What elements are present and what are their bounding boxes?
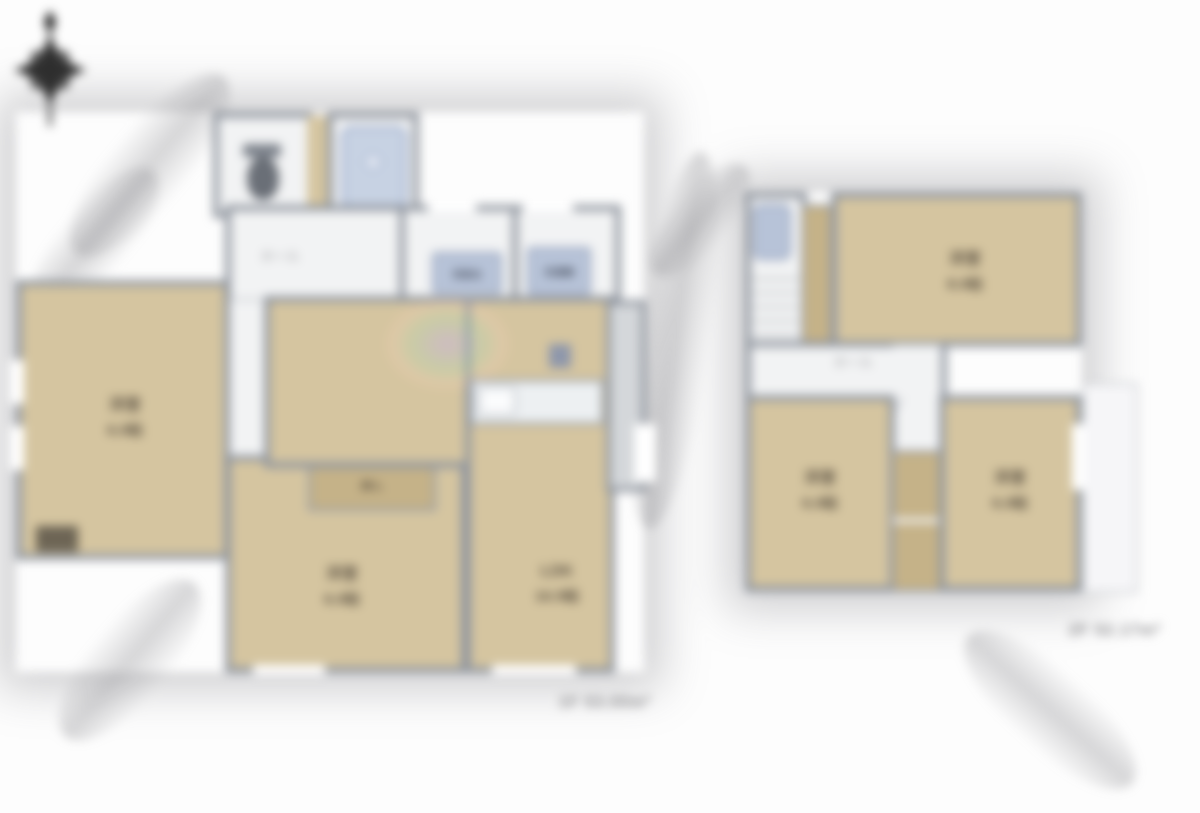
floor1-bedroom-left-label: 洋室 6.0帖 bbox=[70, 388, 180, 448]
closet bbox=[801, 204, 833, 344]
room-name: 洋室 bbox=[326, 563, 358, 588]
balcony bbox=[1082, 383, 1138, 593]
floor2-bedroom-top-label: 洋室 8.0帖 bbox=[905, 238, 1025, 306]
window bbox=[10, 360, 24, 404]
washroom-divider-wall bbox=[512, 211, 518, 299]
toilet-icon bbox=[753, 204, 791, 260]
closet-divider bbox=[893, 518, 941, 523]
window bbox=[492, 665, 576, 674]
room-size: 6.0帖 bbox=[324, 588, 360, 611]
floor1-ldk-label: LDK 16.5帖 bbox=[502, 548, 612, 620]
room-size: 16.5帖 bbox=[535, 585, 579, 608]
room-name: 洋室 bbox=[804, 467, 836, 492]
floor2-hall-label: ホール bbox=[818, 352, 888, 371]
floor2-bedroom-left-label: 洋室 6.0帖 bbox=[765, 458, 875, 524]
room-size: 6.0帖 bbox=[992, 492, 1028, 515]
floor1-bedroom-center-label: 洋室 6.0帖 bbox=[292, 555, 392, 619]
balcony-door-gap bbox=[1072, 424, 1084, 490]
closet: 押入 bbox=[308, 461, 436, 511]
toilet-icon bbox=[247, 156, 279, 200]
compass-icon bbox=[6, 4, 96, 134]
floor2-caption: 2F 52.17m² bbox=[1040, 622, 1190, 640]
window bbox=[523, 203, 573, 211]
floor1-caption: 1F 53.00m² bbox=[530, 694, 680, 712]
floor1-bathroom bbox=[327, 112, 419, 218]
kitchen-appliance-icon bbox=[549, 344, 571, 368]
vanity-icon: 洗面台 bbox=[432, 252, 502, 294]
floorplan-scene: ホール 洗面台 洗濯機 洋室 6.0帖 押入 洋室 6.0帖 LDK 16.5帖… bbox=[0, 0, 1200, 733]
bathtub-drain-icon bbox=[365, 154, 381, 170]
room-name: LDK bbox=[541, 560, 574, 585]
room-name: 洋室 bbox=[949, 248, 981, 273]
window bbox=[428, 203, 476, 211]
kitchen-sink-icon bbox=[478, 386, 516, 416]
washing-machine-icon: 洗濯機 bbox=[527, 247, 591, 295]
room-size: 6.0帖 bbox=[802, 492, 838, 515]
room-size: 6.0帖 bbox=[107, 419, 143, 442]
storage-box bbox=[36, 526, 78, 552]
room-name: 洋室 bbox=[994, 467, 1026, 492]
floor1-hall-label: ホール bbox=[240, 246, 320, 265]
room-size: 8.0帖 bbox=[947, 273, 983, 296]
ldk-floor-sheen bbox=[385, 298, 510, 390]
window bbox=[10, 426, 24, 470]
floor2-bedroom-right-label: 洋室 6.0帖 bbox=[955, 458, 1065, 524]
entrance-door-gap bbox=[634, 424, 656, 482]
floor1-toilet-room bbox=[213, 112, 313, 218]
window bbox=[253, 665, 325, 674]
room-name: 洋室 bbox=[109, 394, 141, 419]
